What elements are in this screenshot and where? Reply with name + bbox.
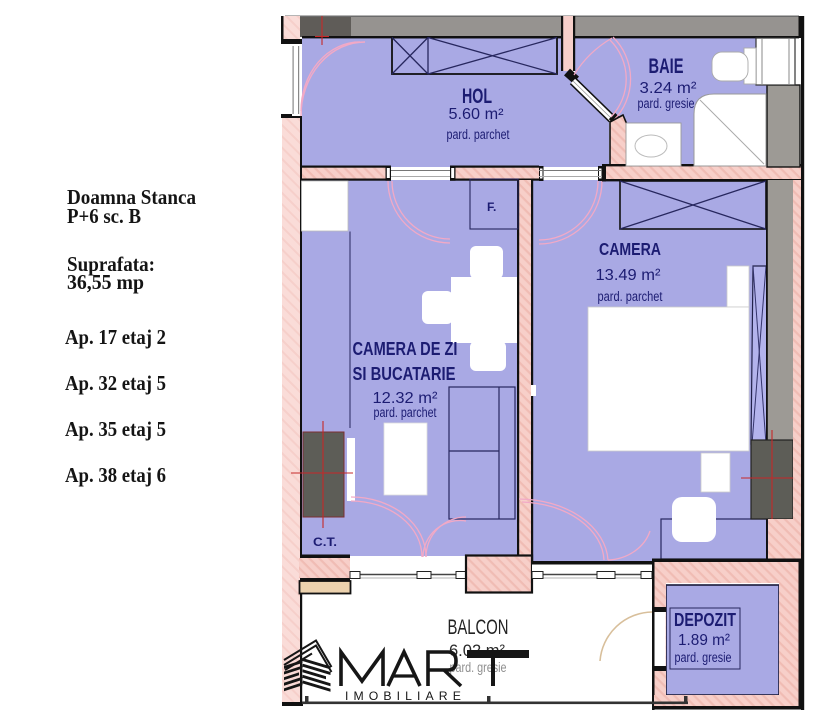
svg-text:Ap. 17 etaj 2: Ap. 17 etaj 2: [65, 325, 166, 349]
svg-text:HOL: HOL: [462, 85, 492, 108]
svg-text:1.89 m²: 1.89 m²: [678, 632, 731, 649]
svg-text:3.24 m²: 3.24 m²: [640, 80, 698, 97]
svg-text:IMOBILIARE: IMOBILIARE: [345, 689, 466, 703]
svg-text:SI BUCATARIE: SI BUCATARIE: [353, 363, 456, 384]
svg-text:P+6 sc. B: P+6 sc. B: [67, 204, 141, 228]
svg-text:CAMERA DE ZI: CAMERA DE ZI: [353, 338, 458, 359]
svg-text:BALCON: BALCON: [448, 616, 509, 639]
svg-text:C.T.: C.T.: [313, 535, 337, 549]
svg-text:pard. gresie: pard. gresie: [450, 659, 507, 675]
svg-text:Ap. 32 etaj 5: Ap. 32 etaj 5: [65, 371, 166, 395]
svg-text:13.49 m²: 13.49 m²: [596, 267, 662, 284]
svg-text:BAIE: BAIE: [649, 55, 684, 78]
svg-text:pard. parchet: pard. parchet: [598, 289, 663, 304]
svg-text:pard. parchet: pard. parchet: [447, 127, 510, 142]
svg-text:CAMERA: CAMERA: [599, 239, 661, 259]
svg-text:Ap. 38 etaj 6: Ap. 38 etaj 6: [65, 463, 166, 487]
svg-text:pard. parchet: pard. parchet: [374, 405, 437, 420]
svg-text:36,55 mp: 36,55 mp: [67, 270, 144, 294]
svg-text:F.: F.: [487, 200, 496, 214]
svg-text:pard. gresie: pard. gresie: [675, 650, 732, 665]
svg-text:DEPOZIT: DEPOZIT: [674, 609, 737, 630]
svg-text:5.60 m²: 5.60 m²: [449, 106, 504, 123]
svg-text:Ap. 35 etaj 5: Ap. 35 etaj 5: [65, 417, 166, 441]
svg-text:pard. gresie: pard. gresie: [638, 96, 695, 111]
